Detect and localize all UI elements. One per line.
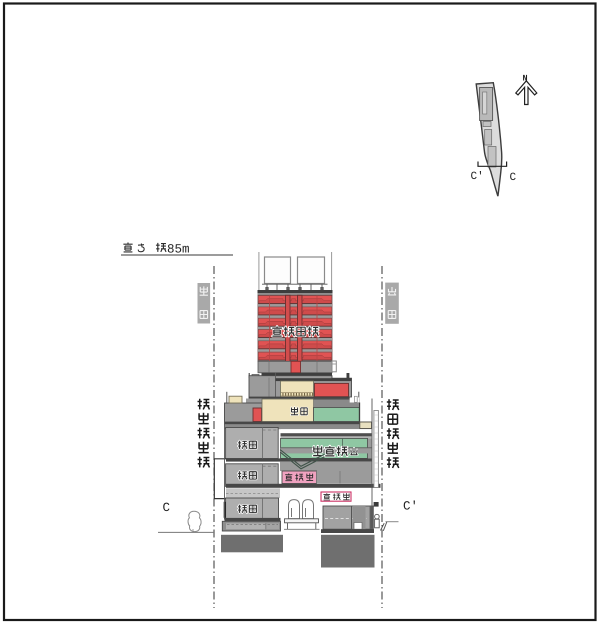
svg-text:C: C [510,172,517,184]
svg-text:C': C' [471,171,484,183]
svg-text:C: C [163,501,171,515]
svg-text:85m: 85m [167,243,190,257]
svg-text:C': C' [403,500,418,514]
